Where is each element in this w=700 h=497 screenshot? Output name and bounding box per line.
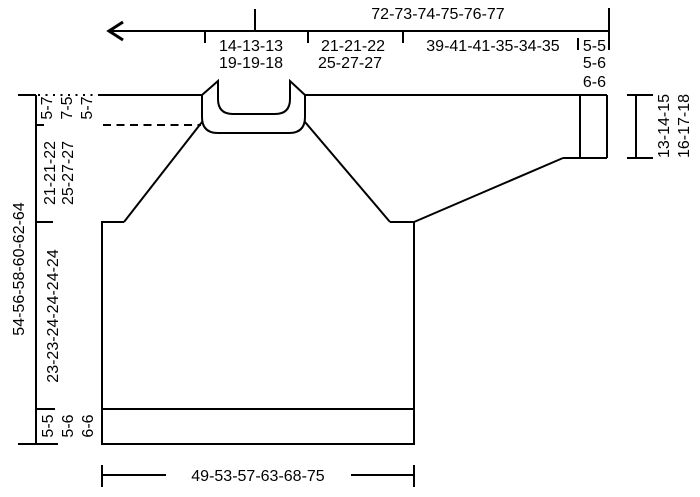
sleeve-underarm-seam <box>414 158 563 222</box>
label-body-length: 23-23-24-24-24-24 <box>45 249 62 383</box>
label-neck-depth-3: 5-7 <box>79 96 96 119</box>
label-sleeve-top-1: 21-21-22 <box>321 38 385 55</box>
label-total-length: 54-56-58-60-62-64 <box>11 202 28 336</box>
neckband-inner-curve <box>202 81 305 114</box>
label-neck-depth-1: 5-7 <box>39 96 56 119</box>
garment-outline <box>38 81 607 444</box>
label-sleeve-length: 39-41-41-35-34-35 <box>426 38 560 55</box>
label-body-width: 49-53-57-63-68-75 <box>191 468 325 485</box>
label-bottom-rib-3: 6-6 <box>80 414 97 437</box>
label-bottom-rib-1: 5-5 <box>40 414 57 437</box>
label-cuff-width-2: 16-17-18 <box>676 94 693 158</box>
schematic-canvas: 72-73-74-75-76-77 14-13-13 19-19-18 21-2… <box>0 0 700 497</box>
label-yoke-depth-1: 21-21-22 <box>42 141 59 205</box>
label-bottom-rib-2: 5-6 <box>60 414 77 437</box>
body-outline <box>102 222 414 444</box>
pattern-schematic: 72-73-74-75-76-77 14-13-13 19-19-18 21-2… <box>0 0 700 497</box>
measurement-lines <box>18 8 653 487</box>
label-back-neck-2: 19-19-18 <box>219 55 283 72</box>
measurement-labels: 72-73-74-75-76-77 14-13-13 19-19-18 21-2… <box>11 6 693 485</box>
right-raglan-line <box>305 122 390 222</box>
label-sleeve-top-2: 25-27-27 <box>318 55 382 72</box>
label-back-neck-1: 14-13-13 <box>219 38 283 55</box>
label-cuff-rib-2: 5-6 <box>583 55 606 72</box>
label-cuff-rib-3: 6-6 <box>583 74 606 91</box>
label-yoke-depth-2: 25-27-27 <box>60 141 77 205</box>
label-cuff-rib-1: 5-5 <box>583 38 606 55</box>
label-total-width: 72-73-74-75-76-77 <box>371 6 505 23</box>
left-raglan-line <box>124 122 202 222</box>
label-cuff-width-1: 13-14-15 <box>656 94 673 158</box>
label-neck-depth-2: 7-5 <box>59 96 76 119</box>
